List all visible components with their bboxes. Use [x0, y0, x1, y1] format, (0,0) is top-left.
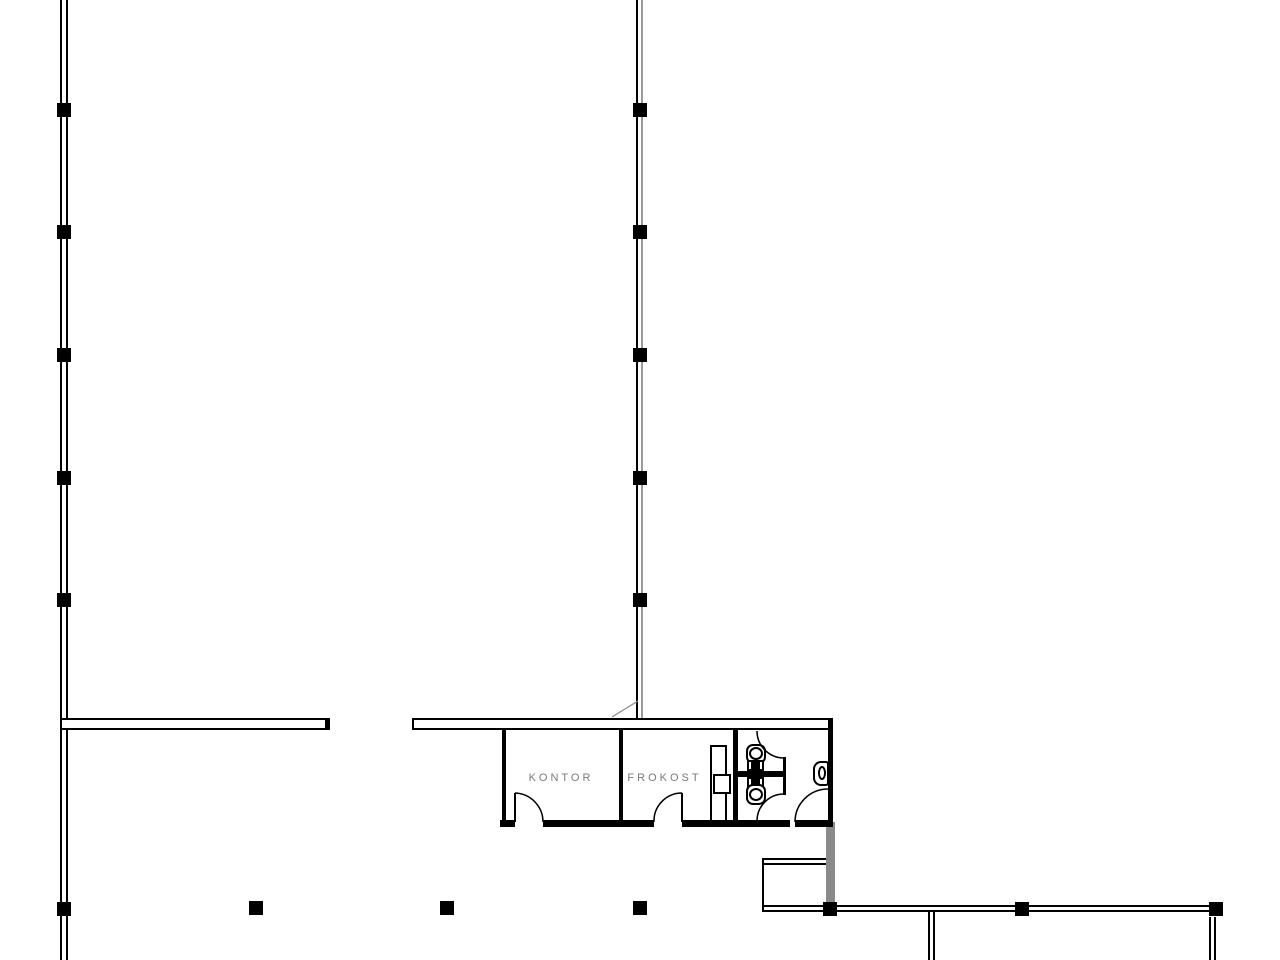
column-marker	[57, 225, 71, 239]
wall-stub-south-b-outer	[1209, 917, 1211, 960]
door-arc-kontor	[515, 793, 543, 822]
wall-stub-south-b-inner	[1214, 917, 1216, 960]
column-marker	[1015, 902, 1029, 916]
door-leaf-frokost	[681, 793, 683, 822]
column-marker	[57, 348, 71, 362]
annex-wall-top-inner	[762, 863, 826, 865]
column-marker	[57, 902, 71, 916]
floor-plan: KONTOR FROKOST	[0, 0, 1280, 960]
room-label-frokost: FROKOST	[612, 772, 717, 784]
column-marker	[57, 103, 71, 117]
column-marker	[823, 902, 837, 916]
wall-wc-west	[733, 729, 738, 827]
column-marker	[57, 593, 71, 607]
wall-stub-south-a-inner	[933, 912, 935, 960]
wall-core-south-segment	[795, 820, 833, 827]
column-marker	[633, 103, 647, 117]
column-marker	[249, 901, 263, 915]
wall-west-wing-endcap	[325, 718, 330, 730]
wall-west-wing	[60, 718, 330, 730]
column-marker	[440, 901, 454, 915]
door-arc-frokost	[654, 793, 682, 822]
toilet-lower-bowl-inner	[749, 788, 763, 801]
toilet-upper-bowl-inner	[749, 747, 763, 760]
sink-fixture-basin	[818, 766, 826, 780]
column-marker	[633, 225, 647, 239]
annex-wall-west	[762, 858, 764, 911]
column-marker	[1209, 902, 1223, 916]
toilet-upper-cistern-marker	[751, 762, 760, 770]
column-marker	[57, 471, 71, 485]
annex-wall-top-outer	[762, 858, 826, 860]
column-marker	[633, 593, 647, 607]
wall-east-gray-stub	[826, 822, 835, 904]
door-arc-east-room	[795, 789, 828, 822]
wall-stub-south-a-outer	[928, 912, 930, 960]
wall-core-south-segment	[682, 820, 790, 827]
column-marker	[633, 471, 647, 485]
door-leaf-kontor	[514, 793, 516, 822]
wall-break-mark	[612, 701, 638, 717]
wall-core-south-segment	[500, 820, 515, 827]
column-marker	[633, 901, 647, 915]
wall-core-south-segment	[543, 820, 654, 827]
column-marker	[633, 348, 647, 362]
room-label-kontor: KONTOR	[500, 772, 622, 784]
